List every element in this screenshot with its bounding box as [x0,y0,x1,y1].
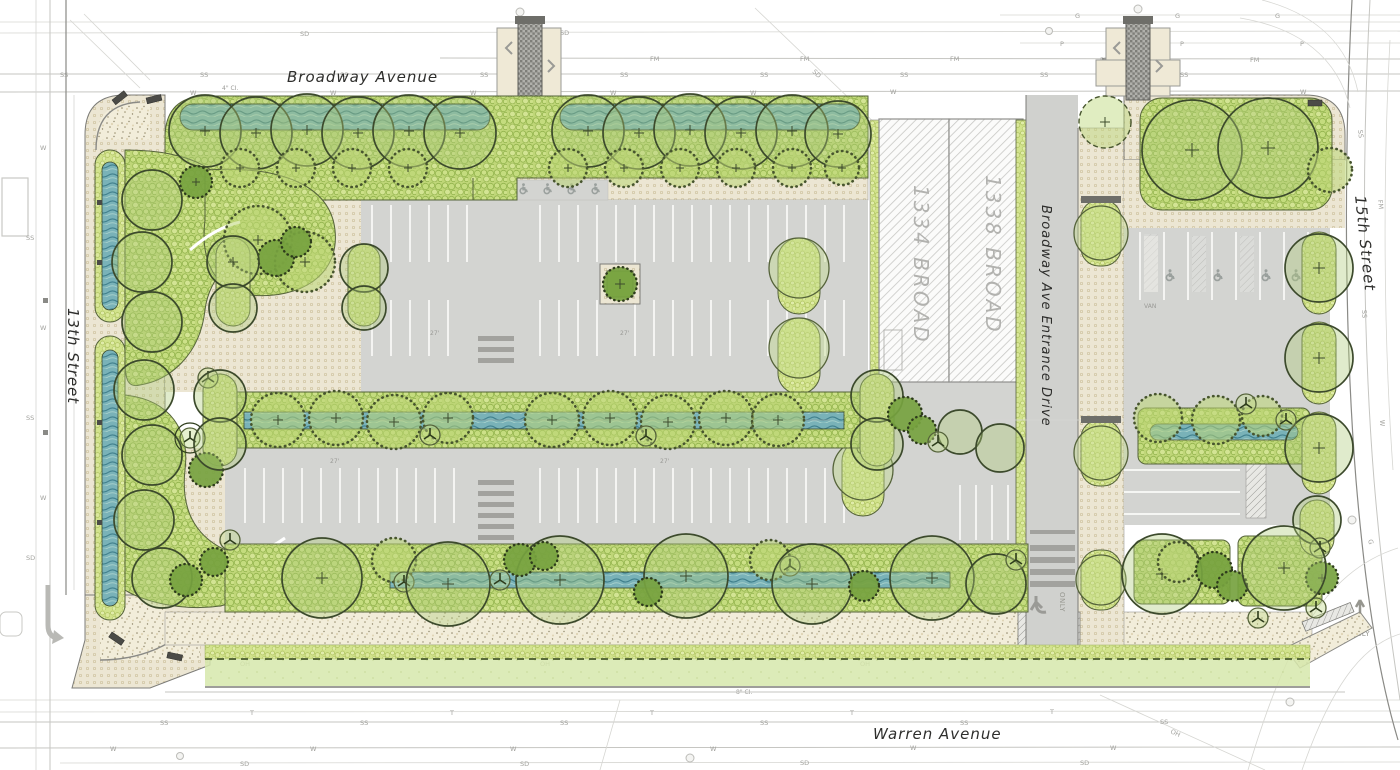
svg-text:T: T [449,709,454,717]
svg-text:27': 27' [330,458,340,465]
svg-text:SD: SD [800,759,809,767]
svg-text:W: W [890,88,897,96]
svg-text:SD: SD [520,760,529,768]
svg-text:P: P [1180,40,1184,48]
svg-text:W: W [40,144,47,152]
svg-text:27': 27' [660,458,670,465]
svg-text:T: T [849,709,854,717]
svg-text:SS: SS [1040,71,1048,79]
svg-text:W: W [1110,744,1117,752]
svg-text:27': 27' [620,330,630,337]
crosswalk-west [497,16,561,100]
svg-text:SS: SS [760,71,768,79]
svg-text:T: T [649,709,654,717]
svg-text:SS: SS [1160,718,1168,726]
svg-text:W: W [710,745,717,753]
buildings: 1334 BROAD 1338 BROAD [870,119,1023,382]
building-1334-label: 1334 BROAD [909,185,933,345]
svg-text:SS: SS [900,71,908,79]
svg-text:G: G [1075,12,1080,20]
svg-text:OH: OH [1169,728,1182,740]
svg-text:SS: SS [26,234,34,242]
building-1338-label: 1338 BROAD [981,175,1005,335]
svg-text:G: G [1366,538,1375,545]
entrance-drive-label: Broadway Ave Entrance Drive [1038,205,1053,427]
landscape-site-plan: ONLY SS SS SS SS SS SS SS SS SS W W W W … [0,0,1400,770]
broadway-avenue-label: Broadway Avenue [287,68,438,86]
svg-text:FM: FM [800,55,809,63]
fifteenth-street-label: 15th Street [1351,195,1379,293]
bench [1308,100,1322,106]
svg-text:SS: SS [1356,129,1365,138]
svg-text:SS: SS [60,71,68,79]
svg-text:SD: SD [1080,759,1089,767]
svg-text:P: P [1060,40,1064,48]
svg-text:FM: FM [650,55,659,63]
svg-text:T: T [1049,708,1054,716]
only-marking-drive: ONLY [1058,592,1066,612]
svg-text:W: W [110,745,117,753]
svg-text:G: G [1275,12,1280,20]
svg-text:G: G [1175,12,1180,20]
svg-text:FM: FM [1250,56,1259,64]
svg-text:SS: SS [160,719,168,727]
svg-text:W: W [40,494,47,502]
svg-text:T: T [249,709,254,717]
svg-text:SD: SD [811,68,823,80]
svg-text:W: W [310,745,317,753]
svg-text:W: W [40,324,47,332]
pipe-label: 4" CI. [222,85,238,92]
svg-text:SD: SD [26,554,35,562]
svg-text:W: W [910,744,917,752]
svg-text:SS: SS [560,719,568,727]
svg-text:W: W [510,745,517,753]
thirteenth-street-label: 13th Street [64,308,82,404]
svg-text:SS: SS [26,414,34,422]
svg-text:SD: SD [240,760,249,768]
warren-avenue-label: Warren Avenue [873,725,1002,743]
svg-text:FM: FM [950,55,959,63]
svg-text:SS: SS [480,71,488,79]
site-plan-canvas: ONLY SS SS SS SS SS SS SS SS SS W W W W … [0,0,1400,770]
svg-text:SD: SD [300,30,309,38]
svg-text:SS: SS [200,71,208,79]
svg-text:SS: SS [620,71,628,79]
svg-text:SS: SS [1360,310,1368,319]
svg-text:FM: FM [1376,199,1385,209]
crosswalk-east [1096,16,1180,100]
svg-text:27': 27' [430,330,440,337]
van-stall-label: VAN [1144,303,1156,310]
svg-text:SS: SS [760,719,768,727]
svg-text:SS: SS [1180,71,1188,79]
svg-text:SS: SS [360,719,368,727]
svg-text:P: P [1300,40,1304,48]
svg-text:W: W [1378,420,1386,427]
